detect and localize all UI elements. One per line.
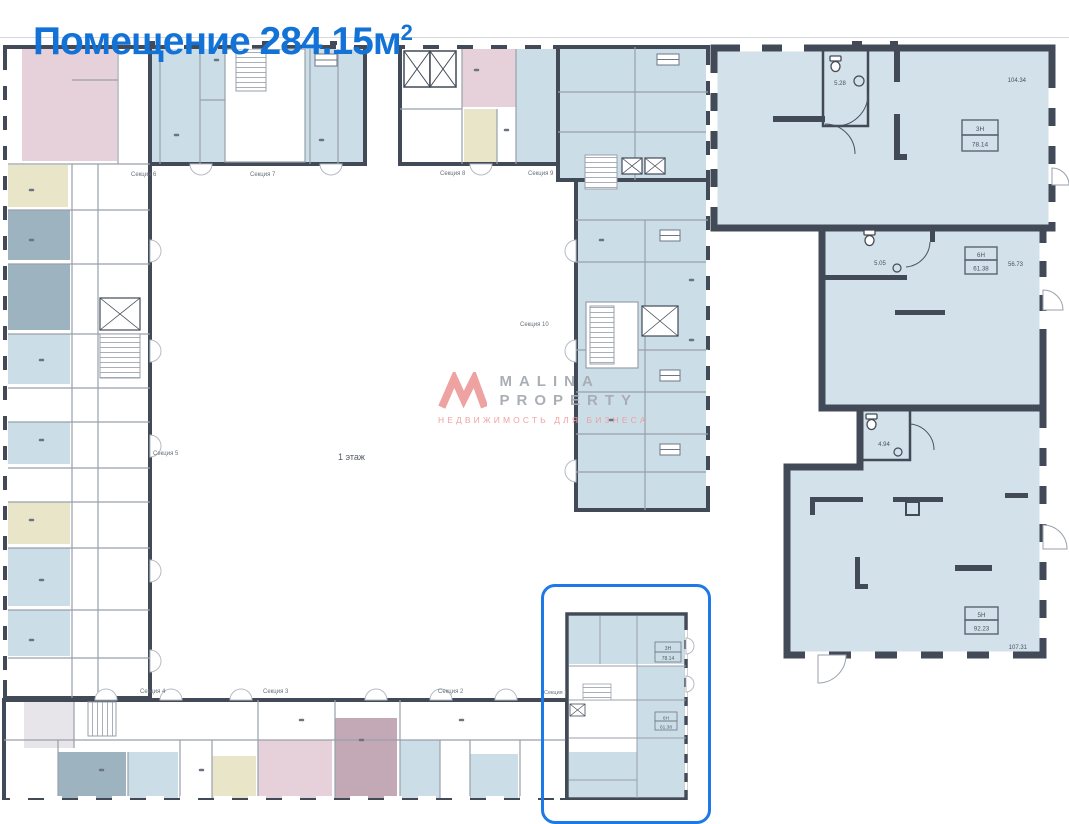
wing-left (5, 47, 150, 698)
selected-section-highlight[interactable] (541, 584, 711, 824)
wc-area-mid: 5.05 (874, 261, 886, 267)
room-3n-area: 78.14 (972, 142, 989, 149)
wc-area-bottom: 4.94 (878, 442, 890, 448)
malina-logo-icon (438, 372, 487, 410)
toilet-icon (864, 230, 875, 246)
wing-top-right (400, 47, 558, 164)
room-5n-dim: 107.31 (1009, 645, 1028, 651)
watermark-brand-top: MALINA (499, 374, 638, 390)
watermark-brand-bottom: PROPERTY (499, 393, 638, 409)
room-6n-area: 61.38 (973, 266, 989, 273)
toilet-icon (830, 56, 841, 72)
page-title: Помещение 284.15м2 (33, 20, 412, 64)
room-5n-area: 92.23 (974, 626, 990, 633)
section-label-10: Секция 10 (520, 322, 549, 328)
detail-room-3n: 5.28 3Н 78.14 104.34 (714, 41, 1069, 228)
section-label-3: Секция 3 (263, 689, 289, 695)
title-superscript: 2 (401, 20, 412, 45)
section-label-8: Секция 8 (440, 171, 466, 177)
section-label-5: Секция 5 (153, 451, 179, 457)
plan-labels: Секция 6 Секция 7 Секция 8 Секция 9 Секц… (131, 171, 554, 695)
section-label-6: Секция 6 (131, 172, 157, 178)
detail-room-5n: 4.94 5Н 92.23 107.31 (787, 408, 1067, 683)
room-3n-dim: 104.34 (1008, 78, 1027, 84)
section-label-4: Секция 4 (140, 689, 166, 695)
wing-right (558, 47, 708, 510)
watermark: MALINA PROPERTY НЕДВИЖИМОСТЬ ДЛЯ БИЗНЕСА (438, 372, 638, 425)
section-label-9: Секция 9 (528, 171, 554, 177)
wc-area-top: 5.28 (834, 81, 846, 87)
room-3n-id: 3Н (976, 126, 985, 133)
room-5n-id: 5Н (978, 612, 986, 619)
detail-room-6n: 5.05 6Н 61.38 56.73 (822, 228, 1063, 408)
floor-label: 1 этаж (338, 452, 365, 462)
section-label-2: Секция 2 (438, 689, 464, 695)
toilet-icon (866, 414, 877, 430)
room-6n-dim: 56.73 (1008, 262, 1024, 268)
section-label-7: Секция 7 (250, 172, 276, 178)
room-6n-id: 6Н (977, 252, 985, 259)
door-arcs (95, 164, 576, 700)
watermark-tagline: НЕДВИЖИМОСТЬ ДЛЯ БИЗНЕСА (438, 415, 638, 425)
wing-bottom (4, 700, 567, 800)
floorplan-detail: 5.28 3Н 78.14 104.34 5.05 6Н 61.38 5 (710, 38, 1069, 700)
